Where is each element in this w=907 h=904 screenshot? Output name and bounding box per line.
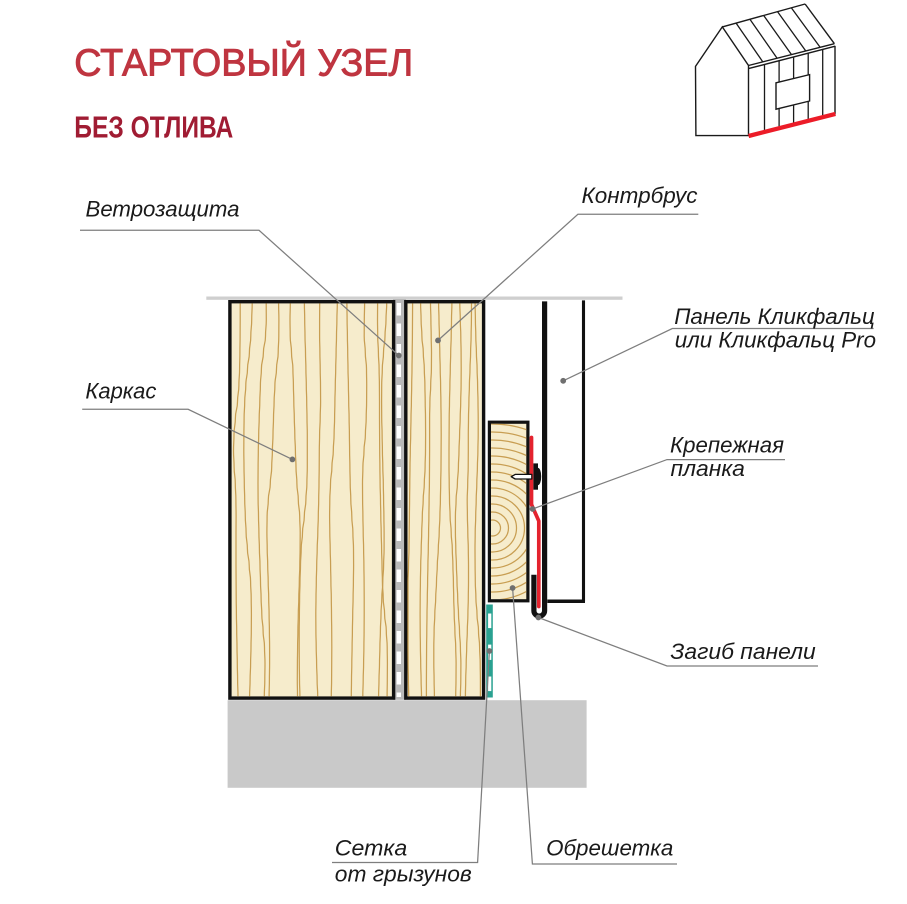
svg-text:Каркас: Каркас: [85, 378, 156, 403]
svg-text:Загиб панели: Загиб панели: [670, 639, 816, 664]
svg-text:Ветрозащита: Ветрозащита: [86, 196, 240, 221]
svg-text:Контрбрус: Контрбрус: [582, 183, 698, 208]
svg-text:Крепежная: Крепежная: [670, 433, 784, 458]
svg-text:Панель Кликфальц: Панель Кликфальц: [674, 304, 875, 329]
svg-text:планка: планка: [671, 456, 745, 481]
svg-text:БЕЗ ОТЛИВА: БЕЗ ОТЛИВА: [74, 110, 233, 145]
svg-text:от грызунов: от грызунов: [335, 862, 472, 887]
svg-text:Обрешетка: Обрешетка: [546, 835, 673, 860]
svg-text:СТАРТОВЫЙ УЗЕЛ: СТАРТОВЫЙ УЗЕЛ: [74, 40, 413, 85]
svg-text:Сетка: Сетка: [335, 835, 407, 860]
svg-text:или Кликфальц Pro: или Кликфальц Pro: [675, 328, 876, 353]
